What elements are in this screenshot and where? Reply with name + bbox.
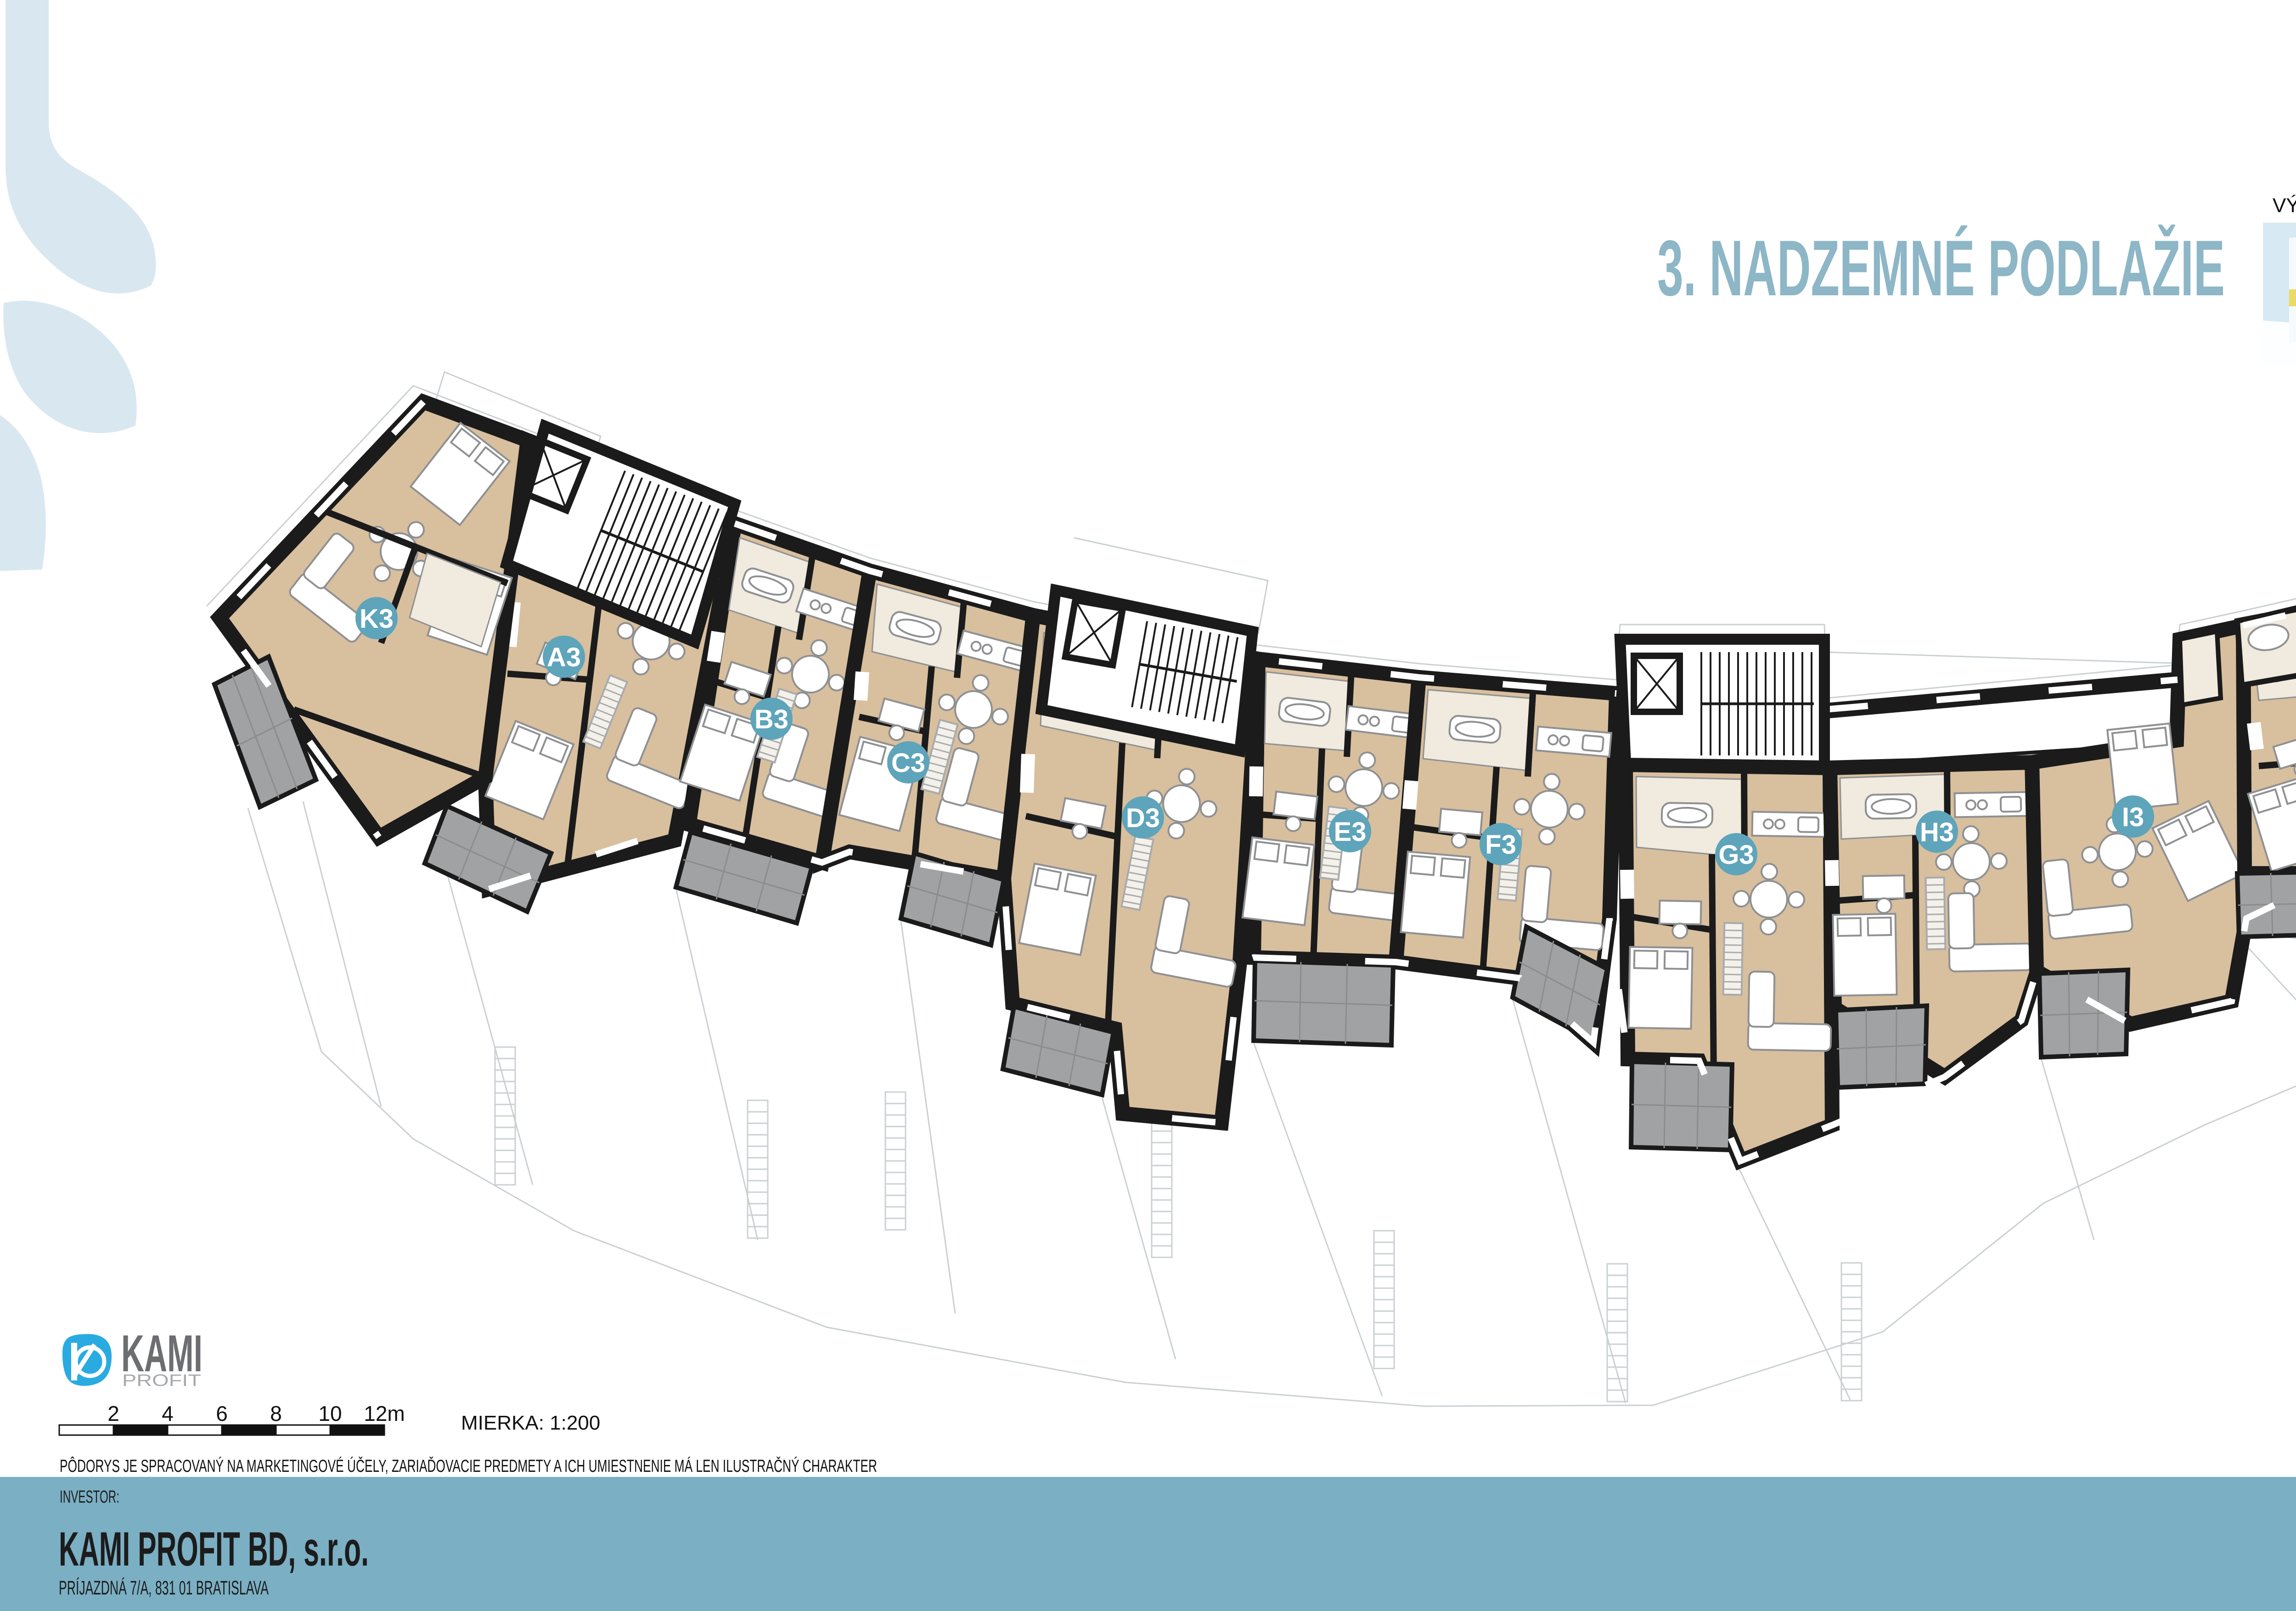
svg-text:A3: A3 [547, 642, 581, 672]
svg-text:F3: F3 [1485, 830, 1516, 860]
svg-text:VÝŠKOVÁ POZÍCIA 3NP: VÝŠKOVÁ POZÍCIA 3NP [2273, 194, 2296, 217]
svg-text:PROFIT: PROFIT [122, 1371, 201, 1390]
svg-text:INVESTOR:: INVESTOR: [60, 1487, 119, 1507]
svg-text:G3: G3 [1718, 840, 1754, 870]
svg-text:6: 6 [216, 1402, 228, 1425]
svg-text:3. NADZEMNÉ PODLAŽIE: 3. NADZEMNÉ PODLAŽIE [1657, 224, 2225, 312]
svg-text:MIERKA: 1:200: MIERKA: 1:200 [461, 1412, 600, 1434]
svg-text:E3: E3 [1334, 817, 1367, 847]
svg-text:B3: B3 [754, 704, 788, 734]
svg-text:12m: 12m [364, 1402, 405, 1425]
svg-text:PRÍJAZDNÁ 7/A, 831 01 BRATISLA: PRÍJAZDNÁ 7/A, 831 01 BRATISLAVA [59, 1577, 269, 1599]
svg-text:H3: H3 [1920, 817, 1954, 847]
svg-text:KAMI PROFIT BD, s.r.o.: KAMI PROFIT BD, s.r.o. [59, 1522, 369, 1576]
svg-text:PÔDORYS JE SPRACOVANÝ NA MARKE: PÔDORYS JE SPRACOVANÝ NA MARKETINGOVÉ ÚČ… [60, 1456, 877, 1476]
svg-text:8: 8 [270, 1402, 282, 1425]
svg-text:C3: C3 [891, 748, 925, 778]
svg-text:D3: D3 [1126, 803, 1160, 833]
svg-text:2: 2 [107, 1402, 119, 1425]
svg-text:I3: I3 [2122, 802, 2144, 832]
svg-text:10: 10 [318, 1402, 342, 1425]
svg-text:K3: K3 [360, 604, 394, 634]
svg-text:4: 4 [162, 1402, 174, 1425]
